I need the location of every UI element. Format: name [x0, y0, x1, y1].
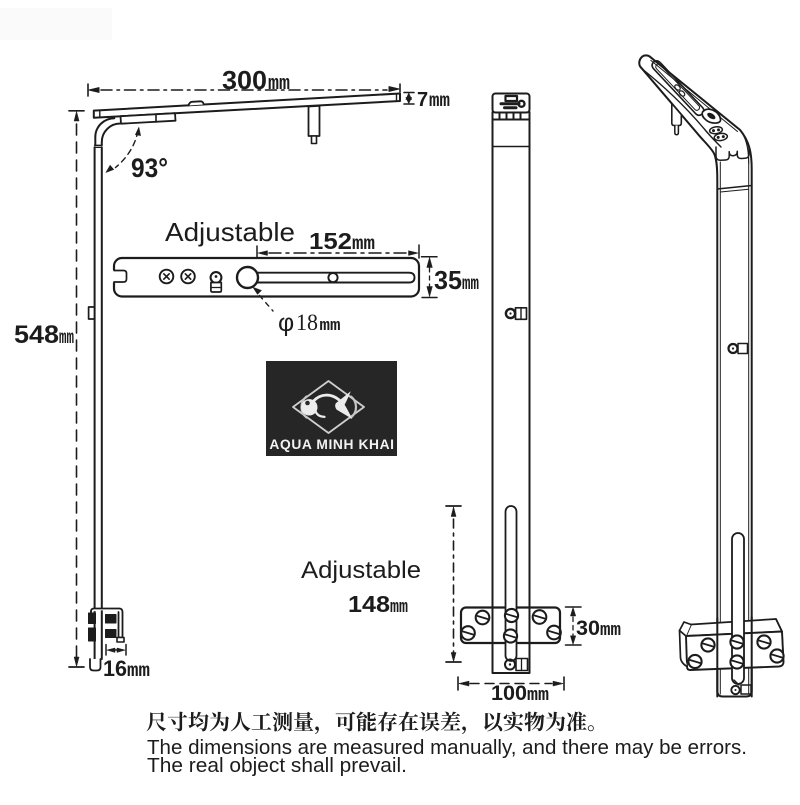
svg-text:7: 7	[417, 89, 428, 111]
svg-text:mm: mm	[352, 233, 375, 255]
svg-text:mm: mm	[320, 317, 341, 336]
svg-text:548: 548	[14, 321, 59, 349]
svg-text:152: 152	[309, 228, 352, 254]
svg-text:30: 30	[576, 616, 600, 640]
svg-text:100: 100	[491, 681, 527, 705]
svg-text:35: 35	[434, 265, 462, 295]
svg-text:mm: mm	[600, 621, 621, 641]
svg-text:mm: mm	[429, 90, 450, 112]
svg-text:mm: mm	[127, 660, 150, 682]
svg-text:The real object shall prevail.: The real object shall prevail.	[147, 754, 407, 777]
svg-text:mm: mm	[462, 273, 479, 295]
svg-text:Adjustable: Adjustable	[165, 217, 295, 247]
svg-text:300: 300	[222, 65, 267, 95]
svg-text:mm: mm	[268, 73, 290, 96]
svg-text:148: 148	[348, 591, 390, 617]
svg-text:mm: mm	[390, 598, 408, 618]
svg-text:mm: mm	[59, 327, 74, 349]
svg-text:93°: 93°	[131, 153, 168, 183]
svg-text:Adjustable: Adjustable	[301, 557, 421, 584]
svg-text:φ: φ	[278, 309, 294, 337]
svg-text:mm: mm	[527, 686, 549, 706]
svg-text:18: 18	[296, 310, 318, 335]
svg-text:16: 16	[103, 656, 127, 681]
svg-text:AQUA MINH KHAI: AQUA MINH KHAI	[269, 437, 394, 452]
